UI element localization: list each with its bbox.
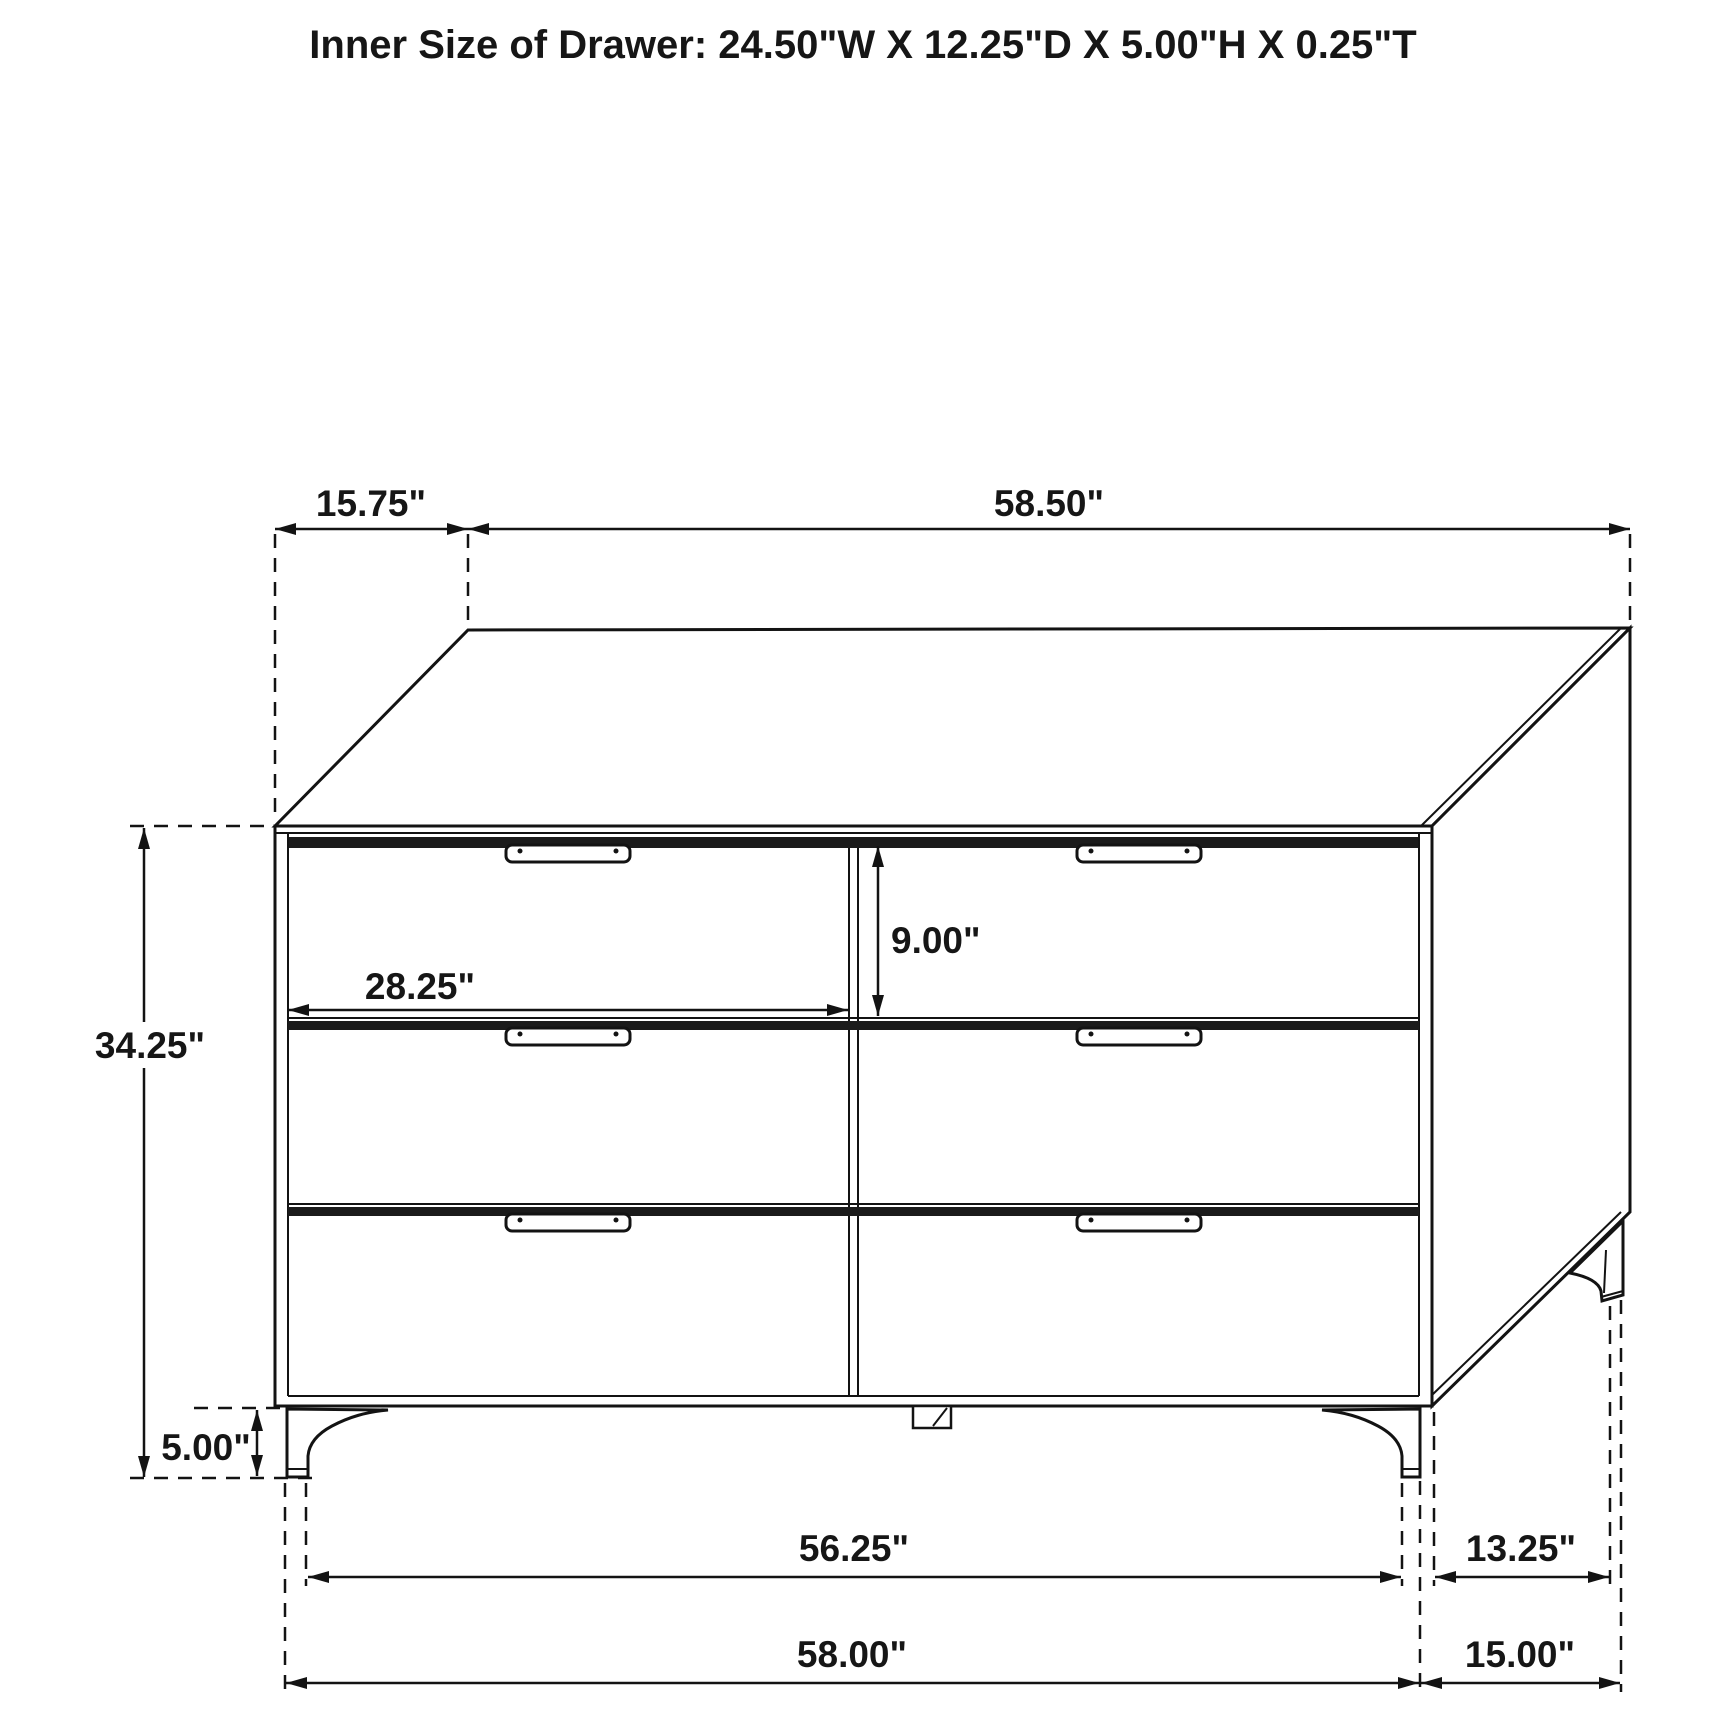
row-divider-2-shadow	[288, 1207, 1419, 1216]
front-right-leg	[1322, 1409, 1420, 1477]
drawing-title: Inner Size of Drawer: 24.50"W X 12.25"D …	[309, 23, 1416, 67]
label-case-height: 34.25"	[95, 1025, 205, 1066]
drawer-handle[interactable]	[506, 838, 630, 862]
center-support-foot	[913, 1406, 951, 1428]
label-overall-width: 58.00"	[797, 1634, 907, 1675]
drawer-handle[interactable]	[1077, 1207, 1201, 1231]
dresser-drawing	[275, 628, 1630, 1477]
drawer-handle[interactable]	[1077, 1021, 1201, 1045]
label-top-width: 58.50"	[994, 483, 1104, 524]
drawer-handle[interactable]	[506, 1207, 630, 1231]
dimension-drawing-page: Inner Size of Drawer: 24.50"W X 12.25"D …	[0, 0, 1726, 1726]
top-rail-shadow	[288, 837, 1419, 848]
label-leg-height: 5.00"	[161, 1427, 251, 1468]
front-left-leg	[287, 1409, 388, 1477]
label-overall-depth: 15.00"	[1465, 1634, 1575, 1675]
drawer-handle[interactable]	[506, 1021, 630, 1045]
label-side-feet-span: 13.25"	[1466, 1528, 1576, 1569]
label-drawer-width: 28.25"	[365, 966, 475, 1007]
dresser-front-face	[275, 826, 1432, 1406]
label-drawer-height: 9.00"	[891, 920, 981, 961]
dresser-top-surface	[275, 628, 1630, 826]
label-top-depth: 15.75"	[316, 483, 426, 524]
row-divider-1-shadow	[288, 1021, 1419, 1030]
drawer-handle[interactable]	[1077, 838, 1201, 862]
dresser-dimension-diagram: Inner Size of Drawer: 24.50"W X 12.25"D …	[0, 0, 1726, 1726]
label-front-feet-span: 56.25"	[799, 1528, 909, 1569]
